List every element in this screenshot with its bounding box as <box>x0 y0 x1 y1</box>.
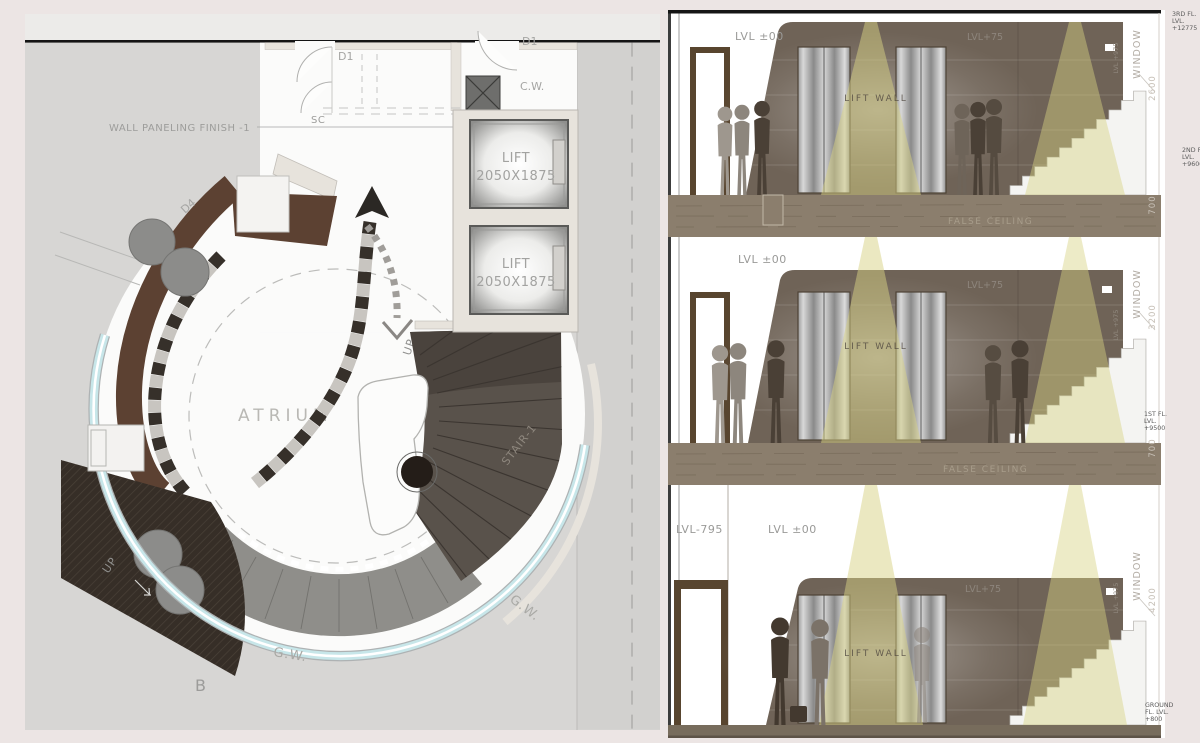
section-cut-edge <box>668 14 671 739</box>
lift-wall-label: LIFT WALL <box>844 94 908 104</box>
dim-2600: 2600 <box>1148 75 1158 101</box>
dim-4200: 4200 <box>1148 587 1158 613</box>
false-ceiling-band-2: FALSE CEILING <box>668 443 1161 485</box>
sill-label: LVL +975 <box>1112 310 1120 341</box>
door-label: D1 <box>522 35 537 48</box>
level-label: LVL+75 <box>967 32 1003 43</box>
lift-wall-label: LIFT WALL <box>844 342 908 352</box>
elevation-panel: LVL ±00 LVL+75 LIFT WALL WINDOW LVL +975… <box>668 10 1165 738</box>
dim-3200: 3200 <box>1148 304 1158 330</box>
plan-top-border <box>25 40 660 43</box>
level-marker-1st: 1ST FL. LVL. +9500 <box>1144 411 1178 433</box>
lift-wall-label: LIFT WALL <box>844 649 908 659</box>
elevation: LVL ±00 LVL+75 LIFT WALL WINDOW LVL +975… <box>668 10 1165 738</box>
wall-light <box>1102 286 1112 293</box>
lift-shaft: LIFT 2050X1875 LIFT 2050X1875 <box>453 110 578 332</box>
lift-size: 2050X1875 <box>476 169 556 184</box>
ground-slab <box>668 725 1161 738</box>
level-marker-ground: GROUND FL. LVL. +800 <box>1145 702 1179 724</box>
false-ceiling-band-1: FALSE CEILING <box>668 195 1161 237</box>
window-label: WINDOW <box>1132 269 1143 319</box>
chair <box>401 456 433 488</box>
level-label: LVL-795 <box>676 523 723 536</box>
architectural-drawing-sheet: D1 D1 C.W. WALL PANELING FINISH -1 SC <box>0 0 1200 743</box>
false-ceiling-label: FALSE CEILING <box>943 465 1028 475</box>
grid-band <box>577 43 660 730</box>
dim-700a: 700 <box>1148 195 1158 214</box>
window-label: WINDOW <box>1132 29 1143 79</box>
false-ceiling-label: FALSE CEILING <box>948 217 1033 227</box>
floor-plan-panel: D1 D1 C.W. WALL PANELING FINISH -1 SC <box>25 14 660 730</box>
service-box <box>88 425 144 471</box>
lift-size: 2050X1875 <box>476 275 556 290</box>
elevation-top-border <box>668 10 1161 14</box>
paneling-return <box>237 176 289 232</box>
window-label: WINDOW <box>1132 551 1143 601</box>
grid-marker-b: B <box>195 676 206 695</box>
door-label: D1 <box>338 50 353 63</box>
sc-label: SC <box>311 115 325 126</box>
level-label: LVL ±00 <box>768 523 817 536</box>
curtain-wall-label: C.W. <box>520 80 544 93</box>
sill-label: LVL +975 <box>1112 583 1120 614</box>
level-label: LVL+75 <box>967 280 1003 291</box>
lift-label: LIFT <box>502 151 530 166</box>
dim-700b: 700 <box>1148 438 1158 457</box>
lift-1: LIFT 2050X1875 <box>470 120 568 208</box>
level-label: LVL ±00 <box>735 30 784 43</box>
lift-label: LIFT <box>502 257 530 272</box>
level-marker-2nd: 2ND FL. LVL. +9600 <box>1182 147 1200 169</box>
lift-2: LIFT 2050X1875 <box>470 226 568 314</box>
sill-label: LVL +975 <box>1112 43 1120 74</box>
level-marker-3rd: 3RD FL. LVL. +12775 <box>1172 11 1200 33</box>
wall-paneling-label: WALL PANELING FINISH -1 <box>109 123 250 134</box>
briefcase <box>790 706 807 722</box>
level-label: LVL ±00 <box>738 253 787 266</box>
column <box>466 76 500 110</box>
level-label: LVL+75 <box>965 584 1001 595</box>
floor-plan: D1 D1 C.W. WALL PANELING FINISH -1 SC <box>25 14 660 730</box>
